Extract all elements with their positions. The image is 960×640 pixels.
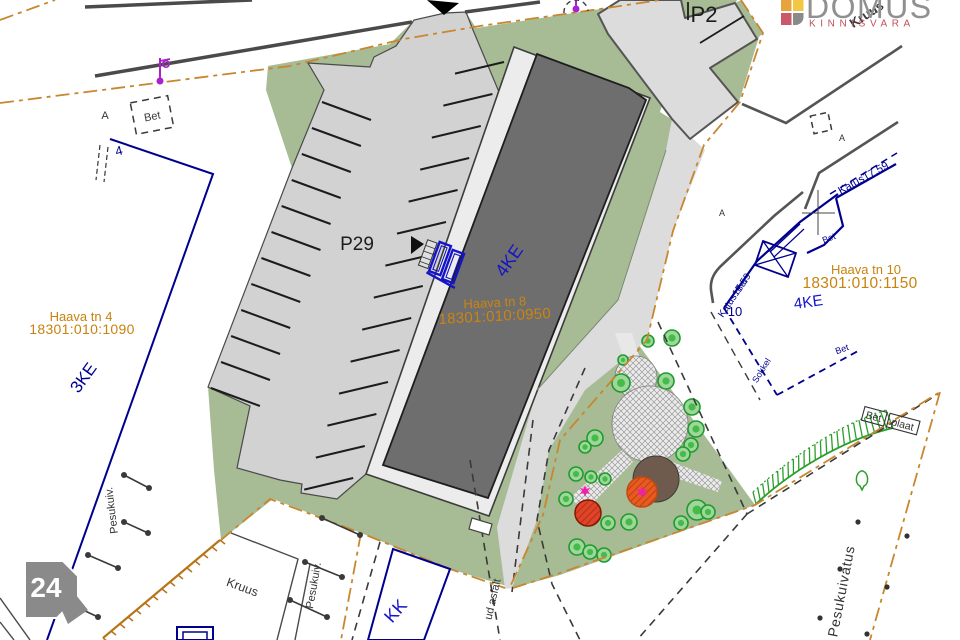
svg-text:Pesukuivatus: Pesukuivatus [824,544,857,638]
svg-text:Sokkel: Sokkel [750,356,773,384]
svg-text:4KE: 4KE [793,292,824,313]
svg-text:KINNISVARA: KINNISVARA [809,19,915,30]
svg-text:Bet: Bet [864,409,882,425]
svg-text:Pesukuiv.: Pesukuiv. [103,486,121,534]
svg-text:A: A [719,208,725,218]
svg-text:18301:010:1090: 18301:010:1090 [29,321,134,337]
svg-text:A: A [839,133,845,143]
svg-text:A: A [101,110,109,122]
svg-text:P29: P29 [340,234,374,255]
svg-text:P2: P2 [691,2,718,27]
svg-text:Kruus: Kruus [225,575,260,599]
svg-text:4: 4 [113,142,124,158]
svg-text:18301:010:1150: 18301:010:1150 [802,275,917,292]
svg-text:Bet: Bet [143,109,162,124]
svg-text:ud asfalt: ud asfalt [483,578,504,621]
svg-text:3KE: 3KE [66,359,100,396]
svg-text:Bet: Bet [834,342,851,356]
svg-text:Pesukuiv.: Pesukuiv. [304,561,324,609]
svg-text:24: 24 [30,572,62,603]
svg-text:Katus17.59: Katus17.59 [836,160,890,197]
